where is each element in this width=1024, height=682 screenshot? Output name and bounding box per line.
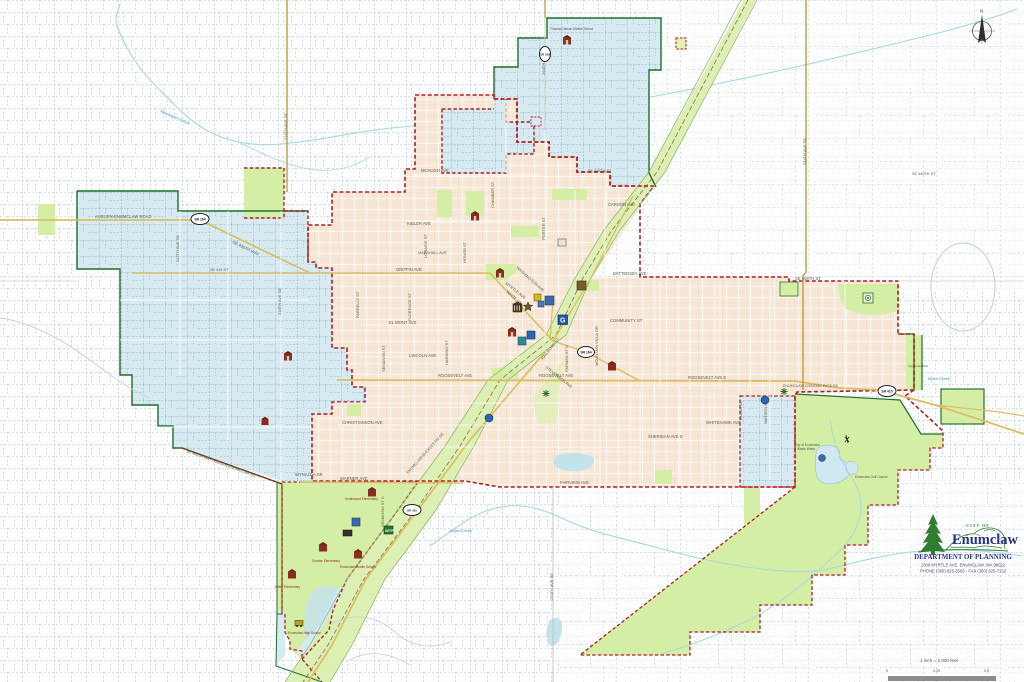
svg-text:FAIRVIEW AVE: FAIRVIEW AVE xyxy=(560,480,589,485)
svg-text:264TH AVE SE: 264TH AVE SE xyxy=(549,573,554,600)
svg-text:DEPARTMENT OF PLANNING: DEPARTMENT OF PLANNING xyxy=(914,554,1012,561)
svg-text:SE 440TH ST: SE 440TH ST xyxy=(912,172,936,176)
svg-text:0.25: 0.25 xyxy=(933,669,940,673)
svg-text:SR 169: SR 169 xyxy=(540,53,550,57)
svg-text:Sportsman Park: Sportsman Park xyxy=(908,364,929,368)
svg-text:PORTER ST: PORTER ST xyxy=(541,217,546,240)
svg-text:FLORENCE ST: FLORENCE ST xyxy=(407,292,412,321)
svg-text:Enumclaw High School: Enumclaw High School xyxy=(288,631,321,635)
svg-text:244TH AVE SE: 244TH AVE SE xyxy=(802,138,807,165)
svg-text:1 inch = 2,000 feet: 1 inch = 2,000 feet xyxy=(920,658,959,663)
svg-text:Enumclaw: Enumclaw xyxy=(952,532,1019,548)
svg-text:212TH AVE SE: 212TH AVE SE xyxy=(175,235,180,262)
svg-text:MCHUGH AVE: MCHUGH AVE xyxy=(421,168,449,173)
svg-text:SEMANSKI ST: SEMANSKI ST xyxy=(381,345,386,372)
svg-text:ROOSEVELT AVE: ROOSEVELT AVE xyxy=(438,373,472,378)
svg-text:MOUNTAIN VILLA DR: MOUNTAIN VILLA DR xyxy=(594,326,599,366)
svg-text:WTP: WTP xyxy=(385,528,394,533)
svg-text:SR 164: SR 164 xyxy=(194,218,205,222)
svg-text:HARDING ST: HARDING ST xyxy=(444,340,449,365)
svg-text:SE 448TH ST: SE 448TH ST xyxy=(588,169,612,173)
svg-text:WARNER AVE: WARNER AVE xyxy=(340,476,368,481)
svg-text:Enumclaw Golf Course: Enumclaw Golf Course xyxy=(855,475,888,479)
svg-text:Boise Creek: Boise Creek xyxy=(450,528,473,533)
svg-text:Kibler Elementary: Kibler Elementary xyxy=(275,585,301,589)
svg-text:ENUMCLAW-CHINOOK PASS RD: ENUMCLAW-CHINOOK PASS RD xyxy=(783,384,839,388)
svg-text:FARMAN ST N: FARMAN ST N xyxy=(564,345,569,372)
svg-text:Sunrise Elementary: Sunrise Elementary xyxy=(312,559,340,563)
svg-text:SE 456TH ST: SE 456TH ST xyxy=(795,276,821,281)
svg-text:WHITEHAWK AVE: WHITEHAWK AVE xyxy=(706,420,741,425)
svg-text:CHAMBER ST: CHAMBER ST xyxy=(490,181,495,208)
svg-text:EL MONT AVE: EL MONT AVE xyxy=(389,320,417,325)
svg-text:CITY OF: CITY OF xyxy=(966,523,989,528)
svg-text:Waste Water: Waste Water xyxy=(797,447,816,451)
svg-text:PHONE (360) 825-3593 - FAX (36: PHONE (360) 825-3593 - FAX (360) 825-723… xyxy=(920,569,1007,574)
svg-text:BLAKE ST: BLAKE ST xyxy=(738,400,743,420)
svg-text:HONOR ST: HONOR ST xyxy=(462,241,467,263)
svg-text:N: N xyxy=(980,9,983,14)
svg-text:CARSON AVE: CARSON AVE xyxy=(608,202,635,207)
svg-text:216TH AVE SE: 216TH AVE SE xyxy=(283,113,288,140)
svg-text:SR 410: SR 410 xyxy=(881,390,892,394)
svg-text:WYNALDA DR: WYNALDA DR xyxy=(295,472,323,477)
svg-text:1309 MYRTLE AVE, ENUMCLAW, WA: 1309 MYRTLE AVE, ENUMCLAW, WA 98022 xyxy=(921,563,1006,568)
svg-text:Boise Creek: Boise Creek xyxy=(928,376,951,381)
svg-text:CHRISTIANSON AVE: CHRISTIANSON AVE xyxy=(342,420,383,425)
svg-text:SE 416 ST: SE 416 ST xyxy=(210,268,229,272)
svg-text:G: G xyxy=(560,318,566,325)
svg-text:Thomas Nelson Middle School: Thomas Nelson Middle School xyxy=(550,27,594,31)
svg-text:SEMANSKI ST S: SEMANSKI ST S xyxy=(380,496,385,527)
svg-text:Southwood Elementary: Southwood Elementary xyxy=(345,497,378,501)
svg-text:ROOSEVELT AVE E: ROOSEVELT AVE E xyxy=(688,375,726,380)
svg-text:GRIFFIN AVE: GRIFFIN AVE xyxy=(396,267,422,272)
svg-text:COMMUNITY ST: COMMUNITY ST xyxy=(610,318,643,323)
svg-text:LINCOLN AVE: LINCOLN AVE xyxy=(409,353,436,358)
svg-text:Enumclaw Middle School: Enumclaw Middle School xyxy=(340,565,376,569)
svg-text:KIBLER AVE: KIBLER AVE xyxy=(407,221,431,226)
svg-text:BATTERSBY AVE: BATTERSBY AVE xyxy=(613,271,647,276)
svg-text:FARRELLY ST: FARRELLY ST xyxy=(355,291,360,318)
svg-text:SR 164: SR 164 xyxy=(580,351,591,355)
svg-text:SHERIDAN AVE S: SHERIDAN AVE S xyxy=(648,434,683,439)
svg-text:218TH AVE SE: 218TH AVE SE xyxy=(277,288,282,315)
svg-text:0: 0 xyxy=(886,669,888,673)
svg-text:0.5: 0.5 xyxy=(984,669,989,673)
svg-text:SR 410: SR 410 xyxy=(407,509,417,513)
svg-text:LORAINE ST: LORAINE ST xyxy=(423,234,428,258)
svg-text:AUBURN-ENUMCLAW ROAD: AUBURN-ENUMCLAW ROAD xyxy=(95,214,152,219)
